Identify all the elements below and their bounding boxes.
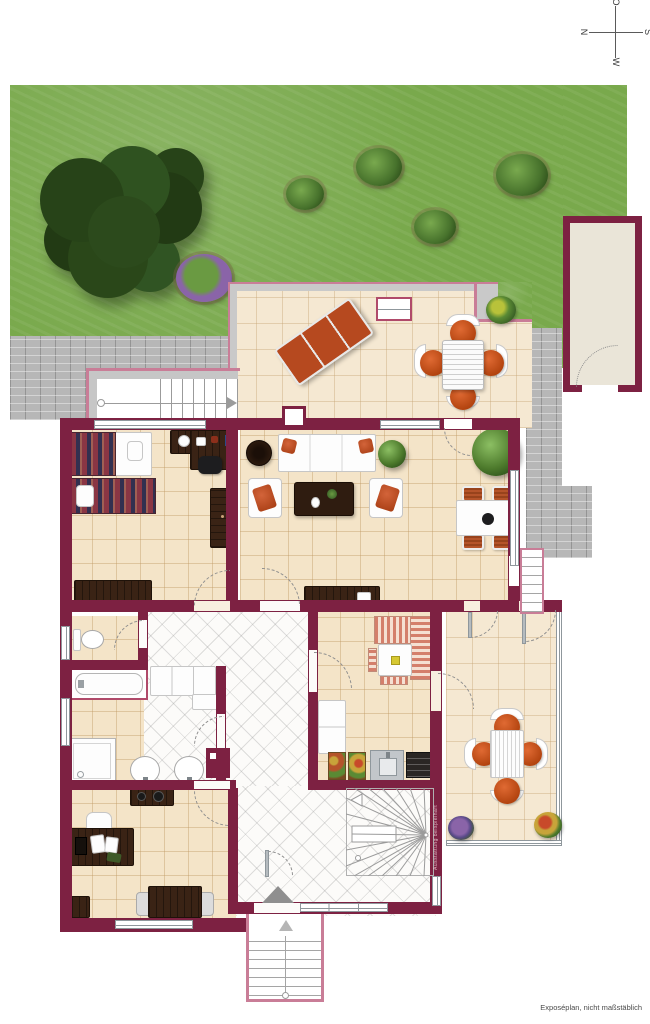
kitchen-stool [368,648,377,672]
window-stair-east [432,876,441,906]
chimney [282,406,306,428]
bed [70,432,152,476]
wall-kitchen-west [308,610,318,788]
wall-west [60,418,72,932]
armchair [369,478,403,518]
coffee-table-plant [327,489,337,499]
shower [68,738,116,784]
garden-stairs-direction-line [101,403,229,404]
watermark-text: Ausstattung beispielhaft [433,800,439,870]
garden-stairs-arrow [227,397,237,409]
window-bath-west [61,698,70,746]
door-gap-conservatory-1 [464,601,480,611]
garden-bush [496,154,548,196]
sideboard-item-round [153,791,164,802]
window-bedroom-north [94,420,206,429]
hall-closet-small [192,694,218,710]
shower-drain [77,771,84,778]
entrance-steps [246,914,324,1002]
door-gap-office [194,781,230,789]
desk-papers [104,836,119,853]
armchair-cushion [375,484,400,513]
desk-notebook [106,852,121,863]
compass-axis-horizontal [589,32,643,33]
sofa [278,434,376,472]
storage-crate [328,752,346,780]
bed-cover [70,432,116,476]
outdoor-table [442,340,484,390]
flower-bed [176,254,232,302]
bed-pillow [76,485,94,507]
garden-bush [414,210,456,244]
sofa-pillow [358,438,375,455]
window-living-slider [380,420,440,429]
hall-closet [150,666,216,696]
toilet-bowl [81,630,104,649]
floor-hallway-upper [144,610,316,788]
terrace-plant-pot [486,296,516,324]
conservatory-glass-east [556,610,562,846]
desk-papers [196,437,206,446]
door-leaf [468,612,472,638]
office-desk [70,828,134,866]
entrance-steps-line [285,936,286,994]
kitchen-sink [370,750,404,782]
sink-faucet [386,752,390,758]
conservatory-table [490,730,524,778]
desk-laptop [75,837,87,855]
kitchen-stool [380,676,408,685]
island-table-decor [391,656,400,665]
living-plant [378,440,406,468]
conservatory-flower-pot [448,816,474,840]
bed-pillow [127,441,143,461]
side-steps [520,548,544,614]
window-wc-west [61,626,70,660]
armchair [248,478,282,518]
entrance-marker-triangle [262,886,294,903]
garden-stairs-start-circle [97,399,105,407]
bathtub [75,673,143,695]
winding-staircase [346,788,434,876]
storage-crate [348,752,366,780]
coffee-table [294,482,354,516]
door-leaf [522,612,526,644]
window-dining-east [510,470,519,566]
toilet-tank [73,629,81,651]
terrace-skylight [376,297,412,321]
window-entry-south [300,903,388,912]
round-side-table [246,440,272,466]
dining-table-bowl [482,513,494,525]
bathtub-faucet [78,680,84,688]
compass-label-right: S [642,26,650,38]
compass-label-bottom: W [610,56,622,68]
sideboard-item-round [137,792,146,801]
window-office-south [115,920,193,929]
floor-plan-canvas: Ausstattung beispielhaft O N S W Exposép… [0,0,650,1024]
nightstand-lamp [178,435,190,447]
bed [70,478,156,514]
compass-icon: O N S W [584,2,648,64]
entrance-steps-circle [282,992,289,999]
door-gap-entry [254,903,300,913]
coffee-table-decor [311,497,320,508]
conservatory-glass-south [446,840,562,846]
compass-label-left: N [578,26,590,38]
dining-chair [462,534,484,550]
garden-bush [286,178,324,210]
sink-basin [379,758,397,776]
kitchen-island-table [378,644,412,676]
meeting-chair [200,892,214,916]
wardrobe-handle [221,515,224,518]
door-leaf [265,850,269,877]
bedroom-desk-chair [198,456,222,474]
compass-label-top: O [610,0,622,8]
conservatory-flower-pot [534,812,562,838]
armchair-cushion [252,484,277,513]
large-tree [88,196,160,268]
meeting-table [148,886,202,918]
paving-left [10,336,88,420]
conservatory-chair [494,778,520,804]
garden-bush [356,148,402,186]
disclaimer-text: Exposéplan, nicht maßstäblich [420,1003,642,1017]
wall-wc-bath [60,660,148,670]
bathtub-niche [70,668,148,700]
door-gap-terrace [444,419,472,429]
desk-monitor [211,436,218,443]
kitchen-cabinets [318,700,346,754]
sofa-pillow [281,438,298,455]
entrance-steps-arrow [279,920,293,931]
